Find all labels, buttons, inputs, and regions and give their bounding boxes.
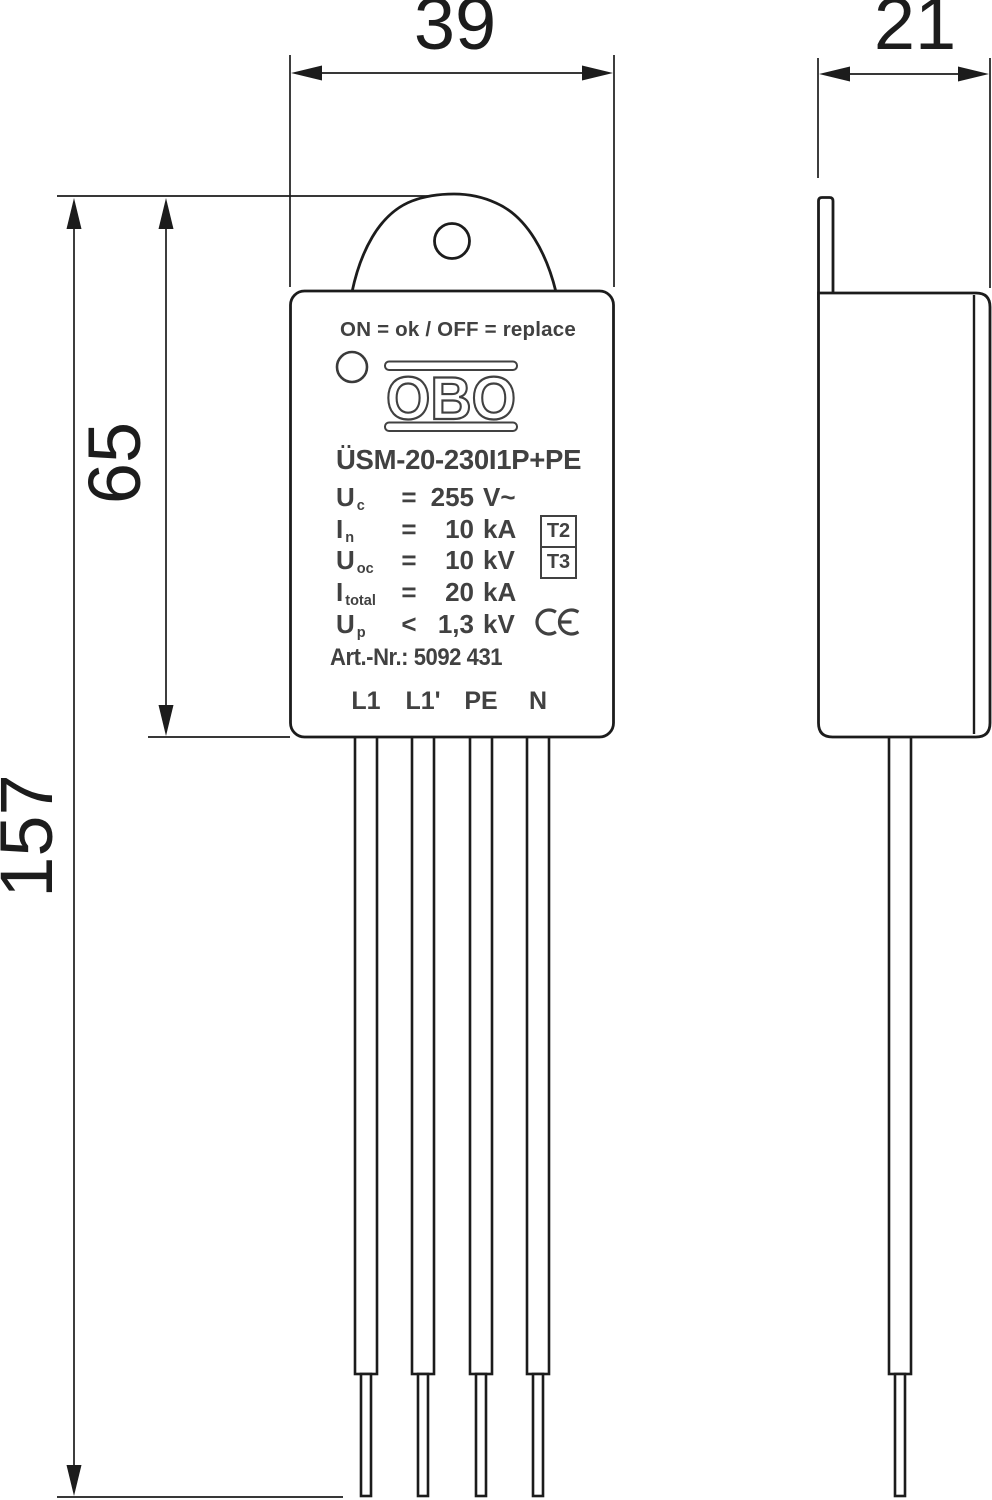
article-number: Art.-Nr.: 5092 431 [330,644,502,672]
dimension-front-width: 39 [395,0,515,61]
terminal-l1: L1 [351,687,380,716]
badge-t3: T3 [540,546,577,579]
technical-drawing-canvas: OBO [0,0,992,1500]
spec-row-uc: Uc = 255 V~ [336,482,586,514]
dimension-total-height: 157 [0,774,64,897]
side-body [819,293,991,737]
spec-row-up: Up < 1,3 kV [336,608,586,640]
status-legend: ON = ok / OFF = replace [329,318,587,342]
dimension-side-depth: 21 [858,0,972,61]
obo-logo-bottom-bar [385,423,517,432]
type-class-badges: T2 T3 [540,515,577,579]
badge-t2: T2 [540,515,577,548]
spec-row-itotal: Itotal = 20 kA [336,577,586,609]
dimension-body-height: 65 [78,422,152,504]
side-wire [889,735,911,1496]
led-indicator [337,352,367,382]
obo-logo: OBO [385,362,517,433]
terminal-n: N [529,687,547,716]
side-mounting-tab [819,198,834,301]
line-art-svg: OBO [0,0,992,1500]
terminal-l1p: L1' [405,687,440,716]
model-number: ÜSM-20-230I1P+PE [336,444,581,476]
mounting-hole [435,224,470,259]
front-wires [355,735,549,1496]
terminal-pe: PE [464,687,497,716]
